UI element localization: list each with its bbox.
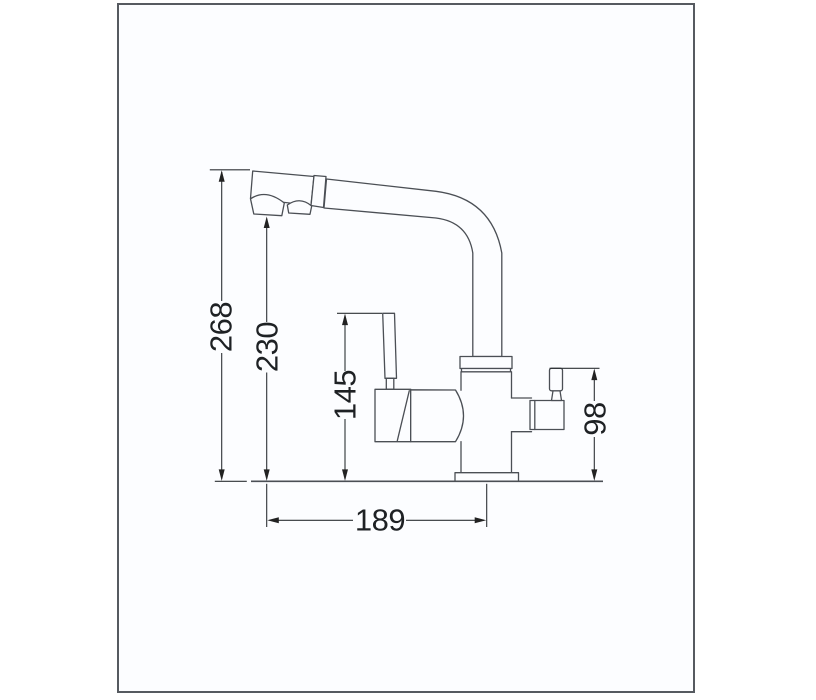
cartridge-housing (411, 390, 464, 442)
arrow-down-icon (219, 469, 225, 481)
body-collar-lip (462, 369, 511, 372)
body-column (461, 372, 532, 473)
page: 268 230 145 98 189 (0, 0, 816, 700)
spout-tube (324, 179, 502, 357)
lever-handle-bar (383, 313, 397, 378)
dimension-label-side-handle-height: 98 (580, 402, 611, 435)
arrow-up-icon (342, 314, 348, 326)
filter-handle-nut (552, 391, 562, 401)
dimension-label-lever-height: 145 (330, 370, 361, 420)
arrow-up-icon (591, 369, 597, 381)
faucet-technical-drawing (0, 0, 816, 700)
arrow-down-icon (342, 469, 348, 481)
dimension-label-overall-height: 268 (206, 302, 237, 352)
dimension-label-horizontal-reach: 189 (355, 505, 405, 536)
arrow-up-icon (264, 217, 270, 229)
lever-handle-neck (386, 378, 394, 389)
faucet-outline (251, 171, 565, 481)
filter-handle-bar (550, 368, 563, 391)
dimension-label-spout-outlet-height: 230 (252, 322, 283, 372)
arrow-down-icon (264, 469, 270, 481)
spray-head-joint-band (311, 176, 326, 208)
arrow-left-icon (267, 517, 279, 523)
base-plate (455, 473, 519, 482)
body-collar (460, 357, 512, 369)
lever-handle-base (375, 389, 411, 441)
arrow-up-icon (219, 170, 225, 182)
arrow-right-icon (475, 517, 487, 523)
arrow-down-icon (591, 469, 597, 481)
spray-head-outlet-right (287, 201, 311, 215)
